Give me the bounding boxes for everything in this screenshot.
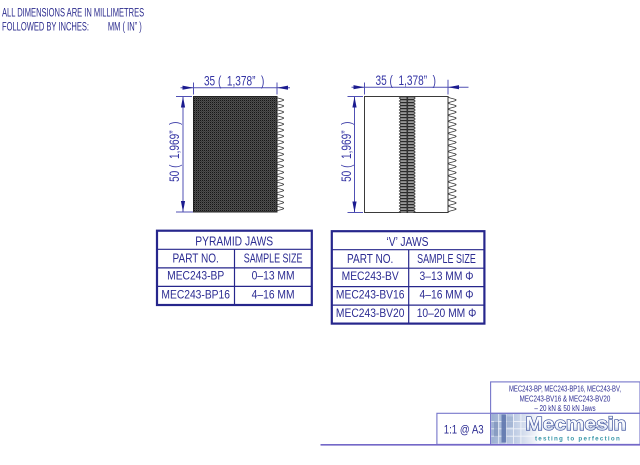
svg-text:MEC243-BV16: MEC243-BV16 — [336, 289, 405, 302]
svg-text:50 ( 1,969” ): 50 ( 1,969” ) — [338, 121, 354, 181]
svg-text:FOLLOWED BY INCHES: MM: FOLLOWED BY INCHES: MM ( IN” ) — [2, 21, 142, 34]
svg-text:ALL DIMENSIONS ARE IN MILLIMET: ALL DIMENSIONS ARE IN MILLIMETRES — [2, 7, 144, 20]
svg-text:3–13 MM Φ: 3–13 MM Φ — [420, 270, 474, 283]
svg-text:MEC243-BV20: MEC243-BV20 — [336, 307, 405, 320]
svg-text:PART NO.: PART NO. — [347, 252, 393, 267]
svg-text:MEC243-BV: MEC243-BV — [342, 270, 399, 283]
svg-text:4–16 MM Φ: 4–16 MM Φ — [420, 289, 474, 302]
svg-text:PART NO.: PART NO. — [173, 251, 219, 266]
svg-text:‘V’ JAWS: ‘V’ JAWS — [386, 234, 428, 250]
svg-text:4–16 MM: 4–16 MM — [252, 289, 295, 302]
svg-text:SAMPLE SIZE: SAMPLE SIZE — [244, 252, 303, 266]
svg-text:MEC243-BP, MEC243-BP16, MEC243: MEC243-BP, MEC243-BP16, MEC243-BV, — [509, 386, 621, 394]
svg-text:– 20 kN & 50 kN Jaws: – 20 kN & 50 kN Jaws — [534, 405, 596, 413]
svg-text:PYRAMID JAWS: PYRAMID JAWS — [195, 233, 273, 249]
svg-text:testing to perfection: testing to perfection — [535, 435, 621, 442]
svg-text:1:1 @ A3: 1:1 @ A3 — [444, 423, 484, 436]
svg-text:0–13 MM: 0–13 MM — [252, 270, 295, 283]
svg-text:MEC243-BV16 & MEC243-BV20: MEC243-BV16 & MEC243-BV20 — [520, 396, 611, 404]
svg-text:50 ( 1,969” ): 50 ( 1,969” ) — [167, 121, 183, 181]
svg-text:35 ( 1,378” ): 35 ( 1,378” ) — [204, 73, 264, 89]
svg-text:MEC243-BP: MEC243-BP — [167, 270, 224, 283]
svg-text:SAMPLE SIZE: SAMPLE SIZE — [417, 252, 476, 266]
svg-text:10–20 MM Φ: 10–20 MM Φ — [417, 307, 477, 320]
svg-text:MEC243-BP16: MEC243-BP16 — [161, 289, 230, 302]
svg-text:35 ( 1,378” ): 35 ( 1,378” ) — [376, 73, 436, 89]
svg-text:Mecmesin: Mecmesin — [525, 414, 626, 435]
